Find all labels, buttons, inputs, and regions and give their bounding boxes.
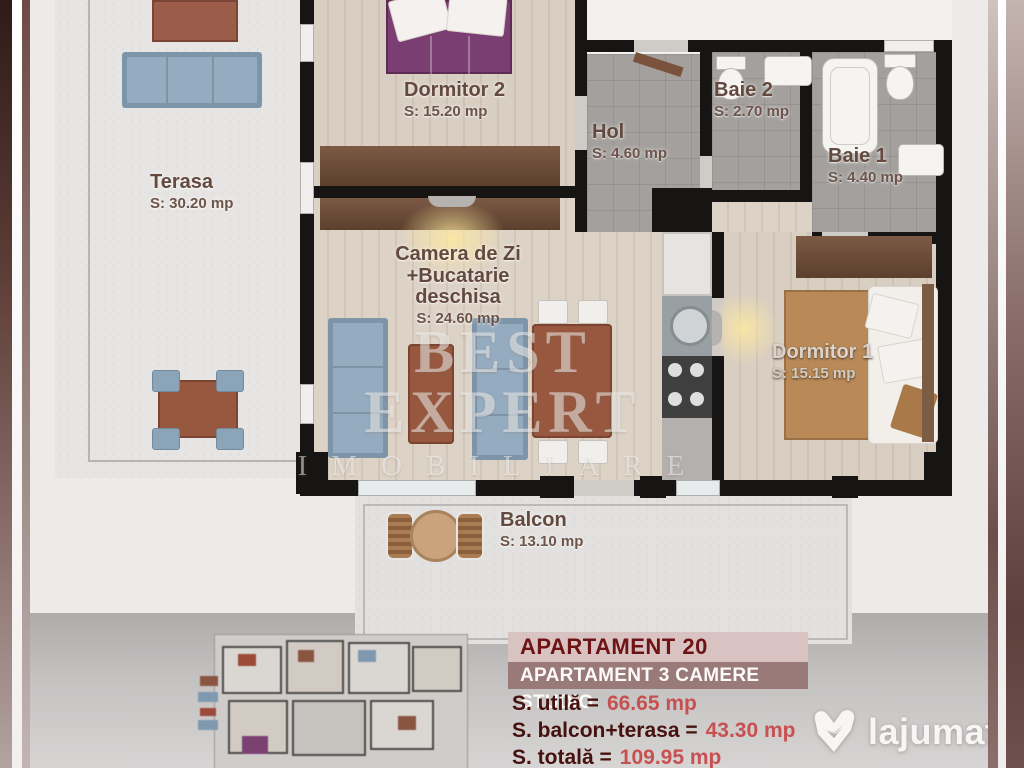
mini-furniture [198,692,218,702]
mini-furniture [298,650,314,662]
window-left-2 [300,162,314,214]
window-top-baie1 [884,40,934,52]
dormitor2-name: Dormitor 2 [404,80,505,102]
wall-pillar [832,476,858,498]
mini-furniture [198,720,218,730]
wall-pillar [540,476,574,498]
camera-dining-table [532,324,612,438]
window-left-3 [300,384,314,424]
stat-value-totala: 109.95 mp [620,746,722,768]
dormitor1-headboard [922,284,934,442]
right-border-bar-inner [988,0,998,768]
mini-building-plan [198,620,482,768]
mini-furniture [358,650,376,662]
right-border-bar [1006,0,1024,768]
dormitor1-name: Dormitor 1 [772,342,873,364]
kitchen-sink [670,306,710,346]
kitchen-stove [662,356,712,418]
terasa-chair [216,370,244,392]
balcon-name: Balcon [500,510,583,532]
apartment-subtitle: APARTAMENT 3 CAMERE STUDIO [508,662,808,689]
wall-light [428,196,476,207]
floor-plan-image: Terasa S: 30.20 mp Dormitor 2 S: 15.20 m… [0,0,1024,768]
wall-right [936,52,952,492]
camera-area: S: 24.60 mp [388,311,528,327]
balcony-door-glass [358,480,476,496]
stat-label-totala: S. totală = [512,746,612,768]
terasa-chair [152,428,180,450]
balcon-label: Balcon S: 13.10 mp [500,510,583,550]
wall-pillar [924,452,952,494]
mini-furniture [200,708,216,716]
exterior-top-baths [700,0,952,40]
terasa-label: Terasa S: 30.20 mp [150,172,233,212]
terasa-edge-bottom [88,460,302,462]
camera-name-line2: +Bucatarie [388,266,528,288]
dining-chair [578,300,608,324]
terasa-area: S: 30.20 mp [150,196,233,212]
stat-value-balcon-terasa: 43.30 mp [706,719,796,742]
camera-label: Camera de Zi +Bucatarie deschisa S: 24.6… [388,244,528,327]
left-border-stripe [12,0,22,768]
entrance-opening [634,40,688,52]
lajumate-heart-icon [806,708,862,756]
hol-name: Hol [592,122,667,144]
camera-coffee-table [408,344,454,444]
camera-name-line3: deschisa [388,287,528,309]
balcon-chair [388,514,412,558]
camera-sofa-left [328,318,388,458]
kitchen-fridge [662,232,712,296]
corridor-floor [712,202,812,232]
door-hol-dormitor2 [575,96,587,150]
wall-pillar-kitchen [652,188,712,232]
wall-pillar [296,452,328,494]
left-border-bar [0,0,12,768]
wall-baie2-bottom [712,190,812,202]
balcony-window-glass [676,480,720,496]
balcon-chair [458,514,482,558]
stat-row-totala: S. totală =109.95 mp [508,746,808,768]
dormitor2-area: S: 15.20 mp [404,104,505,120]
dormitor1-wall-light [712,310,722,346]
stat-row-balcon-terasa: S. balcon+terasa =43.30 mp [508,719,808,743]
dormitor2-wardrobe [320,146,560,186]
terasa-chair [216,428,244,450]
mini-furniture [242,736,268,754]
apartment-info-panel: APARTAMENT 20 APARTAMENT 3 CAMERE STUDIO… [508,632,808,768]
balcon-table [410,510,462,562]
dormitor1-label: Dormitor 1 S: 15.15 mp [772,342,873,382]
terasa-chair [152,370,180,392]
mini-furniture [398,716,416,730]
stat-row-utila: S. utilă =66.65 mp [508,692,808,716]
baie2-area: S: 2.70 mp [714,104,789,120]
terasa-sofa [122,52,262,108]
dining-chair [538,300,568,324]
baie2-name: Baie 2 [714,80,789,102]
baie1-bathtub [822,58,878,154]
camera-sofa-right [472,318,528,460]
mini-room [412,646,462,692]
dormitor1-area: S: 15.15 mp [772,366,873,382]
dormitor2-label: Dormitor 2 S: 15.20 mp [404,80,505,120]
right-border-stripe [998,0,1006,768]
baie1-name: Baie 1 [828,146,903,168]
dining-chair [538,440,568,464]
hol-label: Hol S: 4.60 mp [592,122,667,162]
mini-room [286,640,344,694]
terasa-edge-left [88,0,90,462]
baie1-area: S: 4.40 mp [828,170,903,186]
dining-chair [578,440,608,464]
mini-furniture [200,676,218,686]
stat-value-utila: 66.65 mp [607,692,697,715]
baie1-toilet [886,66,914,100]
stat-label-balcon-terasa: S. balcon+terasa = [512,719,698,742]
stat-label-utila: S. utilă = [512,692,599,715]
terasa-table [152,0,238,42]
baie2-label: Baie 2 S: 2.70 mp [714,80,789,120]
apartment-title: APARTAMENT 20 [508,632,808,662]
window-left-1 [300,24,314,62]
balcon-area: S: 13.10 mp [500,534,583,550]
left-border-bar-inner [22,0,30,768]
dormitor1-wardrobe [796,236,932,278]
balcony-opening [570,480,634,496]
dormitor2-pillow [446,0,508,37]
camera-name-line1: Camera de Zi [388,244,528,266]
baie1-sink [898,144,944,176]
hol-area: S: 4.60 mp [592,146,667,162]
mini-furniture [238,654,256,666]
mini-room [292,700,366,756]
baie1-label: Baie 1 S: 4.40 mp [828,146,903,186]
terasa-name: Terasa [150,172,233,194]
